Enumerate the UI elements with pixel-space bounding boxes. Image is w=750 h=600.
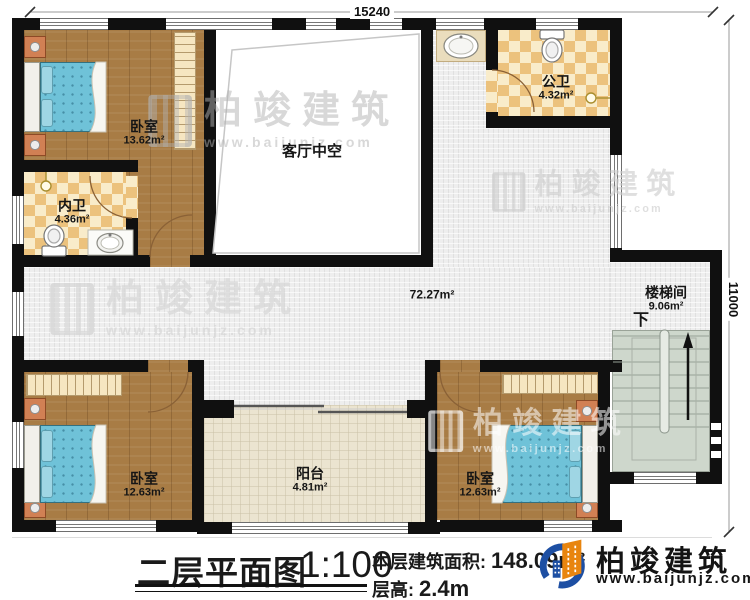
window: [610, 155, 622, 248]
room-label-living-void: 客厅中空: [282, 144, 342, 161]
floor-plan: 柏竣建筑 www.baijunjz.com 柏竣建筑 www.baijunjz.…: [0, 0, 750, 600]
hall-floor-d: [204, 360, 437, 405]
wardrobe: [26, 374, 122, 396]
wall: [12, 244, 24, 292]
room-label-bedroom-br: 卧室 12.63m²: [460, 471, 501, 498]
pillow: [41, 66, 53, 94]
wardrobe: [174, 32, 196, 150]
window: [306, 18, 336, 30]
window: [370, 18, 402, 30]
wall: [402, 18, 436, 30]
window: [544, 520, 592, 532]
nightstand: [576, 400, 598, 422]
hall-floor-c: [24, 267, 622, 360]
stairs-area: [612, 330, 710, 472]
wall: [486, 30, 498, 70]
bedroom-bl-threshold: [148, 360, 188, 372]
window: [12, 196, 24, 244]
wall: [336, 18, 370, 30]
wall: [486, 116, 610, 128]
brand-url: www.baijunjz.com: [596, 570, 750, 587]
nightstand: [24, 398, 46, 420]
wall: [696, 472, 722, 484]
room-label-balcony: 阳台 4.81m²: [293, 466, 328, 493]
wall: [108, 18, 166, 30]
window: [12, 292, 24, 336]
wall: [12, 336, 24, 422]
wall: [12, 360, 148, 372]
room-label-bath-public: 公卫 4.32m²: [539, 74, 574, 101]
wall: [12, 520, 56, 532]
room-label-bath-private: 内卫 4.36m²: [55, 198, 90, 225]
wall: [24, 160, 138, 172]
wall: [610, 18, 622, 155]
bath-private-threshold: [126, 176, 138, 218]
wall: [425, 360, 437, 532]
title-underline: [135, 591, 367, 592]
bed-headboard: [582, 425, 598, 503]
wardrobe: [502, 374, 598, 394]
window: [436, 18, 484, 30]
window: [56, 520, 156, 532]
wall: [598, 372, 610, 532]
title-underline: [135, 584, 367, 587]
wall: [204, 400, 234, 418]
wall: [480, 360, 622, 372]
pillow: [41, 430, 53, 462]
pillow: [41, 99, 53, 127]
bedroom-tl-threshold: [150, 255, 190, 267]
window: [40, 18, 108, 30]
brand-logo-icon: [538, 534, 590, 592]
hall-area-label: 72.27m²: [410, 288, 455, 301]
hall-floor-b: [433, 128, 610, 267]
pillow: [41, 466, 53, 498]
nightstand: [24, 134, 46, 156]
wall: [156, 520, 197, 532]
pillow: [569, 430, 581, 462]
room-label-bedroom-tl: 卧室 13.62m²: [124, 119, 165, 146]
wall: [610, 250, 722, 262]
window: [12, 422, 24, 468]
dimension-right-label: 11000: [726, 278, 741, 321]
window: [166, 18, 272, 30]
bath-public-threshold: [486, 70, 498, 112]
window: [536, 18, 578, 30]
balcony-rail-window: [232, 522, 408, 534]
bedroom-br-threshold: [440, 360, 480, 372]
bed-headboard: [24, 425, 40, 503]
wall: [12, 255, 138, 267]
stair-down-label: 下: [633, 312, 649, 330]
wall: [272, 18, 306, 30]
floor-area-label: 本层建筑面积:: [372, 552, 486, 572]
wall: [407, 400, 437, 418]
wall: [138, 255, 150, 267]
wall: [440, 520, 544, 532]
stair-vent: [710, 416, 722, 466]
wall: [610, 472, 634, 484]
room-label-stairwell: 楼梯间 9.06m²: [645, 285, 687, 312]
bed-headboard: [24, 62, 40, 132]
pillow: [569, 466, 581, 498]
floor-height-value: 2.4m: [419, 576, 469, 600]
window: [634, 472, 696, 484]
nightstand: [24, 36, 46, 58]
wall: [126, 218, 138, 255]
dimension-right: [724, 15, 734, 537]
floor-height-label: 层高:: [372, 580, 414, 600]
floor-height-line: 层高: 2.4m: [372, 576, 469, 600]
vanity-counter: [436, 30, 486, 62]
wall: [190, 255, 433, 267]
wall: [421, 30, 433, 255]
wall: [204, 30, 216, 255]
wall: [192, 360, 204, 532]
room-label-bedroom-bl: 卧室 12.63m²: [124, 471, 165, 498]
wall: [484, 18, 536, 30]
dimension-top-label: 15240: [350, 4, 394, 19]
wall: [12, 18, 24, 196]
wall: [710, 262, 722, 416]
